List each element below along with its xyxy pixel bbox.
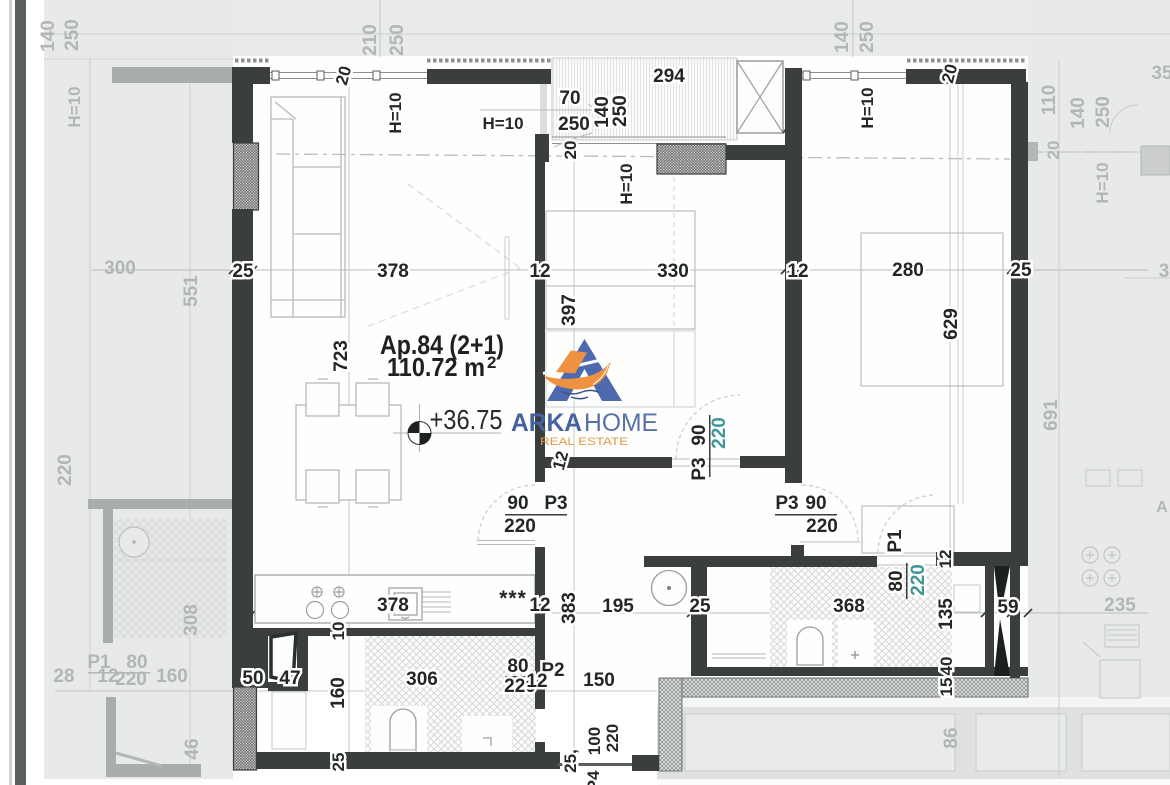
svg-text:40: 40 [937, 657, 956, 676]
svg-text:+36.75: +36.75 [430, 404, 503, 435]
svg-text:90: 90 [689, 424, 710, 445]
svg-text:P3: P3 [544, 493, 567, 514]
svg-text:723: 723 [331, 340, 352, 372]
svg-text:551: 551 [181, 275, 202, 307]
svg-text:80: 80 [507, 656, 528, 677]
svg-text:250: 250 [387, 24, 408, 56]
svg-text:220: 220 [115, 669, 147, 690]
svg-text:25: 25 [232, 261, 254, 282]
svg-text:220: 220 [504, 516, 536, 537]
svg-text:250: 250 [610, 95, 631, 127]
svg-text:20: 20 [1044, 141, 1063, 160]
svg-text:397: 397 [559, 294, 580, 326]
svg-text:220: 220 [603, 724, 622, 752]
svg-text:25,: 25, [561, 749, 580, 773]
svg-text:135: 135 [936, 598, 957, 630]
svg-text:35: 35 [1151, 63, 1170, 84]
svg-text:46: 46 [182, 738, 203, 759]
svg-text:220: 220 [908, 564, 929, 596]
svg-text:250: 250 [62, 19, 83, 51]
svg-text:P4: P4 [584, 770, 603, 785]
svg-text:220: 220 [709, 417, 730, 449]
svg-text:308: 308 [181, 604, 202, 636]
svg-text:25: 25 [689, 596, 711, 617]
svg-text:300: 300 [104, 258, 136, 279]
svg-text:H=10: H=10 [858, 87, 877, 128]
svg-text:A: A [1156, 499, 1168, 516]
svg-text:210: 210 [360, 24, 381, 56]
svg-text:140: 140 [38, 20, 59, 52]
svg-text:378: 378 [377, 261, 409, 282]
svg-text:P3: P3 [775, 493, 798, 514]
svg-text:25: 25 [329, 753, 348, 772]
svg-text:50: 50 [242, 668, 263, 689]
svg-text:90: 90 [805, 493, 826, 514]
svg-text:28: 28 [53, 666, 74, 687]
svg-text:80: 80 [886, 570, 907, 591]
svg-text:250: 250 [558, 114, 590, 135]
svg-text:H=10: H=10 [1093, 162, 1112, 203]
svg-text:160: 160 [156, 666, 188, 687]
svg-text:12: 12 [787, 261, 808, 282]
svg-text:12: 12 [529, 261, 550, 282]
svg-text:70: 70 [559, 88, 580, 109]
svg-text:110: 110 [1039, 85, 1060, 116]
svg-text:H=10: H=10 [65, 86, 84, 127]
svg-text:378: 378 [377, 595, 409, 616]
svg-text:25: 25 [1010, 260, 1032, 281]
svg-text:629: 629 [941, 308, 962, 340]
svg-text:ARKA: ARKA [511, 409, 582, 437]
svg-text:H=10: H=10 [482, 114, 523, 133]
svg-text:100: 100 [585, 727, 604, 755]
svg-text:383: 383 [559, 592, 580, 624]
svg-text:47: 47 [279, 668, 300, 689]
svg-text:280: 280 [892, 260, 924, 281]
svg-text:220: 220 [806, 516, 838, 537]
svg-text:12: 12 [936, 550, 955, 569]
svg-text:HOME: HOME [584, 409, 658, 437]
svg-text:P3: P3 [689, 457, 710, 480]
svg-text:306: 306 [406, 669, 438, 690]
svg-text:195: 195 [602, 596, 634, 617]
svg-text:H=10: H=10 [617, 163, 636, 204]
svg-text:250: 250 [1093, 96, 1114, 128]
svg-text:150: 150 [583, 670, 615, 691]
svg-text:86: 86 [941, 727, 962, 748]
svg-text:12: 12 [526, 671, 547, 692]
svg-text:691: 691 [1041, 399, 1062, 431]
svg-text:59: 59 [997, 597, 1018, 618]
svg-text:110.72 m: 110.72 m [387, 352, 485, 382]
svg-text:250: 250 [857, 21, 878, 53]
svg-text:368: 368 [833, 596, 865, 617]
svg-text:160: 160 [328, 677, 349, 709]
svg-text:12: 12 [529, 595, 550, 616]
svg-text:20: 20 [561, 141, 580, 160]
svg-text:REAL ESTATE: REAL ESTATE [540, 436, 628, 448]
svg-text:330: 330 [657, 261, 689, 282]
svg-text:90: 90 [507, 493, 528, 514]
svg-text:140: 140 [1068, 97, 1089, 129]
svg-text:140: 140 [832, 21, 853, 53]
svg-text:H=10: H=10 [386, 92, 405, 133]
svg-text:10: 10 [329, 622, 348, 641]
svg-text:294: 294 [653, 66, 685, 87]
svg-text:15: 15 [937, 678, 956, 697]
svg-text:235: 235 [1104, 595, 1136, 616]
svg-text:2: 2 [487, 353, 496, 372]
svg-text:3: 3 [1159, 261, 1170, 282]
svg-text:P1: P1 [885, 529, 906, 553]
svg-text:220: 220 [55, 454, 76, 486]
svg-text:***: *** [499, 587, 527, 610]
